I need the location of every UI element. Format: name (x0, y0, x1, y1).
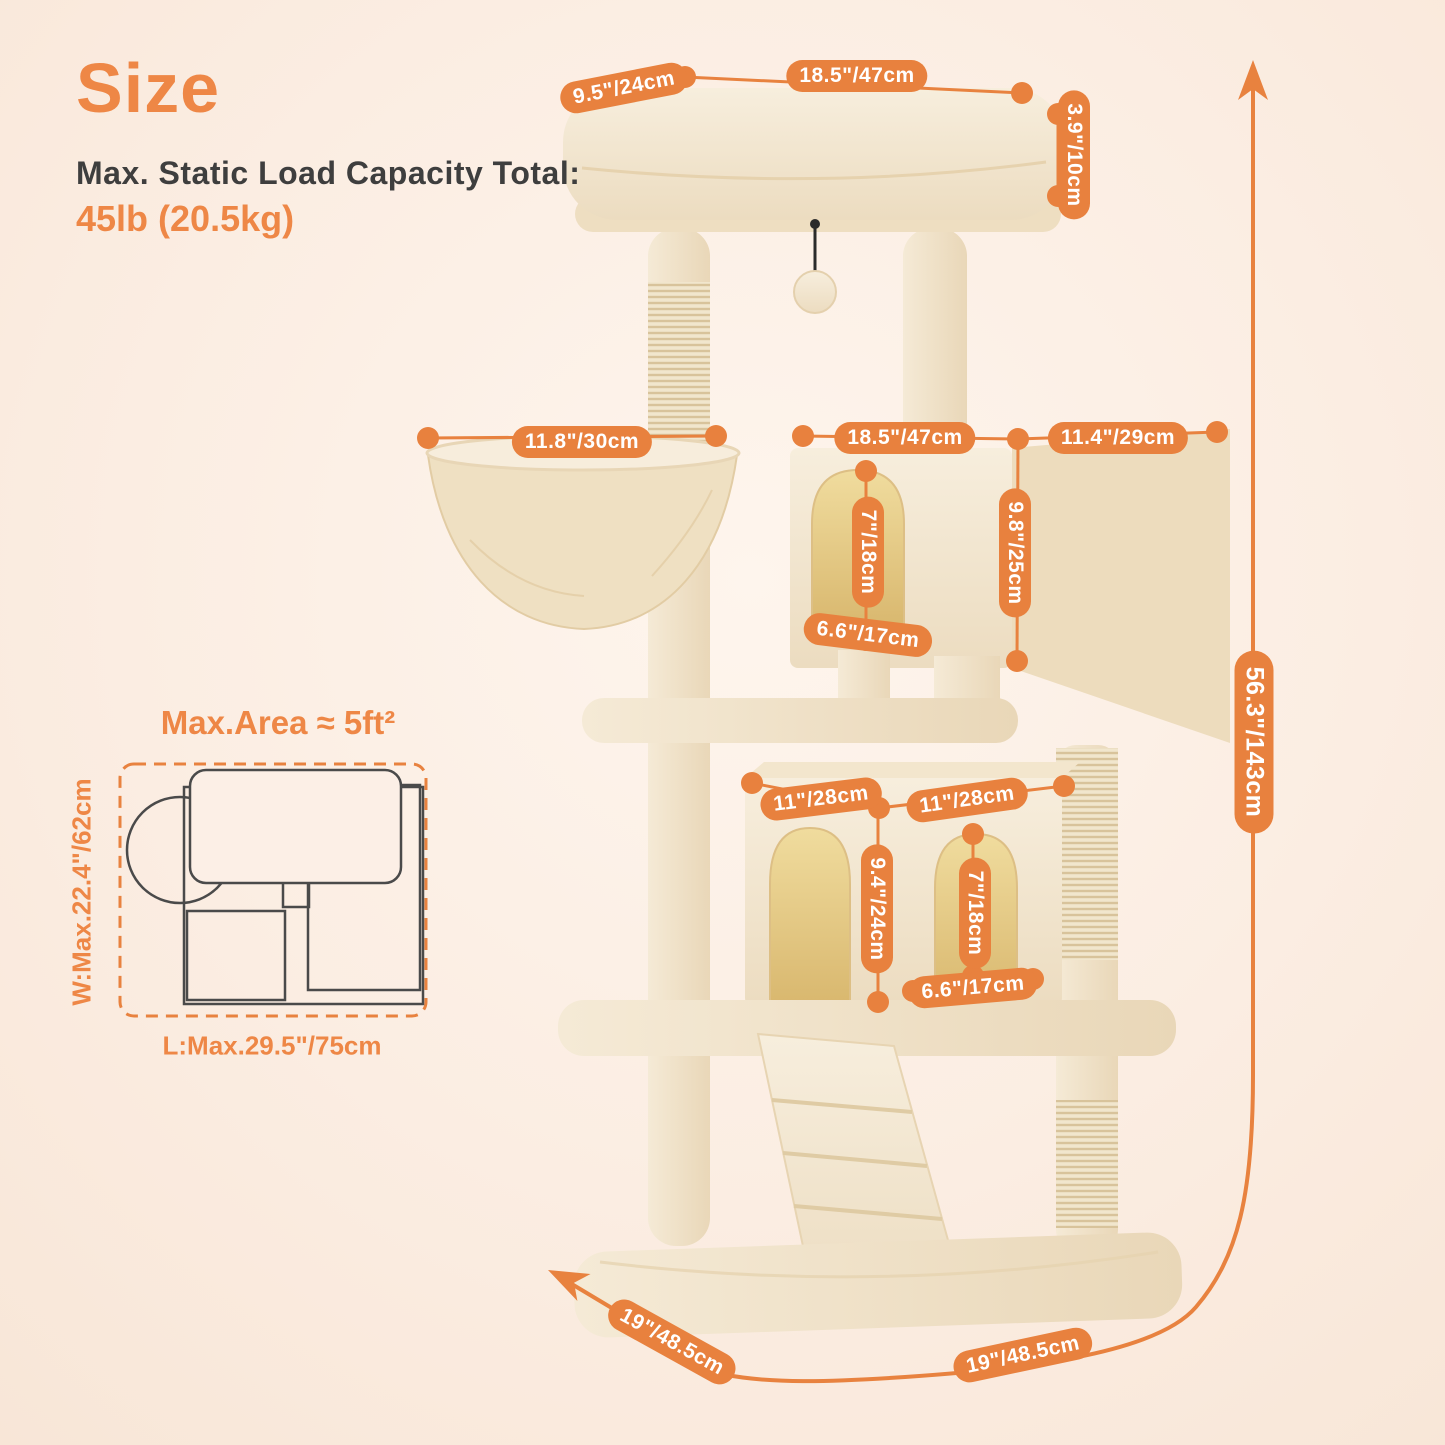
dim-top-perch-width: 18.5"/47cm (786, 60, 927, 92)
floor-plan-perch-rect (190, 770, 401, 883)
dim-upper-condo-width: 18.5"/47cm (834, 422, 975, 454)
dim-upper-condo-depth: 11.4"/29cm (1048, 422, 1188, 454)
lower-condo-top (745, 762, 1080, 778)
lower-condo-door-left (770, 828, 850, 1002)
floor-plan-connector (283, 881, 309, 907)
size-infographic: Size Max. Static Load Capacity Total: 45… (0, 0, 1445, 1445)
middle-platform (582, 698, 1018, 743)
dim-upper-condo-height: 9.8"/25cm (999, 488, 1031, 617)
toy-ball (794, 271, 836, 313)
right-post-sisal-lower (1056, 1100, 1118, 1228)
floor-plan-diagram (120, 764, 426, 1016)
dim-hammock-diameter: 11.8"/30cm (512, 426, 652, 458)
dim-lower-condo-height: 9.4"/24cm (861, 844, 893, 973)
dim-total-height: 56.3"/143cm (1235, 651, 1274, 834)
dim-lower-door-height: 7"/18cm (959, 858, 991, 969)
dim-upper-door-height: 7"/18cm (852, 497, 884, 608)
dim-top-perch-thickness: 3.9"/10cm (1058, 90, 1090, 219)
load-capacity-label: Max. Static Load Capacity Total: (76, 155, 580, 192)
floor-plan-title: Max.Area ≈ 5ft² (118, 704, 438, 742)
upper-support-post-a (838, 650, 890, 702)
left-post-sisal-wrap (648, 282, 710, 448)
load-capacity-value: 45lb (20.5kg) (76, 198, 294, 240)
page-title: Size (76, 48, 220, 128)
floor-plan-small-square (187, 911, 285, 1000)
top-perch (563, 88, 1065, 220)
upper-support-post-b (934, 656, 1000, 702)
floor-plan-width-label: W:Max.22.4"/62cm (67, 778, 98, 1005)
upper-condo-side (1012, 429, 1230, 743)
cat-tree-illustration (427, 88, 1230, 1339)
floor-plan-length-label: L:Max.29.5"/75cm (163, 1031, 382, 1062)
